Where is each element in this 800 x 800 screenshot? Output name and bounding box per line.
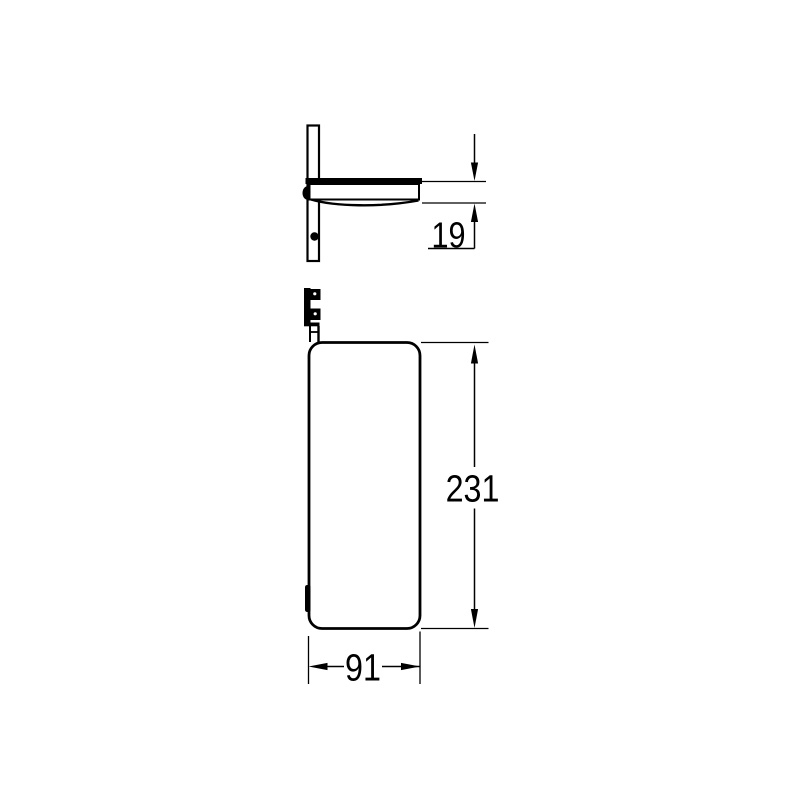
dim-91-arrowhead-left-icon (309, 663, 328, 670)
front-view-mount-bracket (304, 288, 321, 342)
dim-91-arrowhead-right-icon (401, 663, 420, 670)
dim-19-arrowhead-down-icon (471, 163, 478, 182)
front-view-left-clip-tab (305, 585, 311, 612)
dim-91-label: 91 (345, 647, 381, 689)
dimension-19: 19 (422, 134, 486, 256)
dim-231-arrowhead-down-icon (471, 609, 478, 628)
front-view-shelf-face (309, 343, 420, 629)
bracket-upper-pin-hole (313, 292, 316, 295)
bracket-foot (304, 323, 320, 327)
dim-19-arrowhead-up-icon (471, 204, 478, 223)
side-view-screw-hole (310, 232, 318, 240)
dim-19-label: 19 (431, 216, 465, 256)
bracket-lower-pin-hole (314, 312, 317, 315)
technical-drawing: 19 (0, 0, 800, 800)
bracket-vertical-bar (304, 288, 311, 326)
side-view-shelf-body (310, 184, 420, 200)
dimension-231: 231 (421, 343, 499, 629)
front-view: 231 91 (304, 288, 499, 689)
side-view: 19 (303, 126, 487, 262)
side-view-shelf-top-bar (306, 178, 423, 184)
technical-drawing-page: 19 (0, 0, 800, 800)
dim-231-arrowhead-up-icon (471, 345, 478, 364)
dim-231-label: 231 (446, 468, 500, 510)
dimension-91: 91 (309, 632, 421, 690)
